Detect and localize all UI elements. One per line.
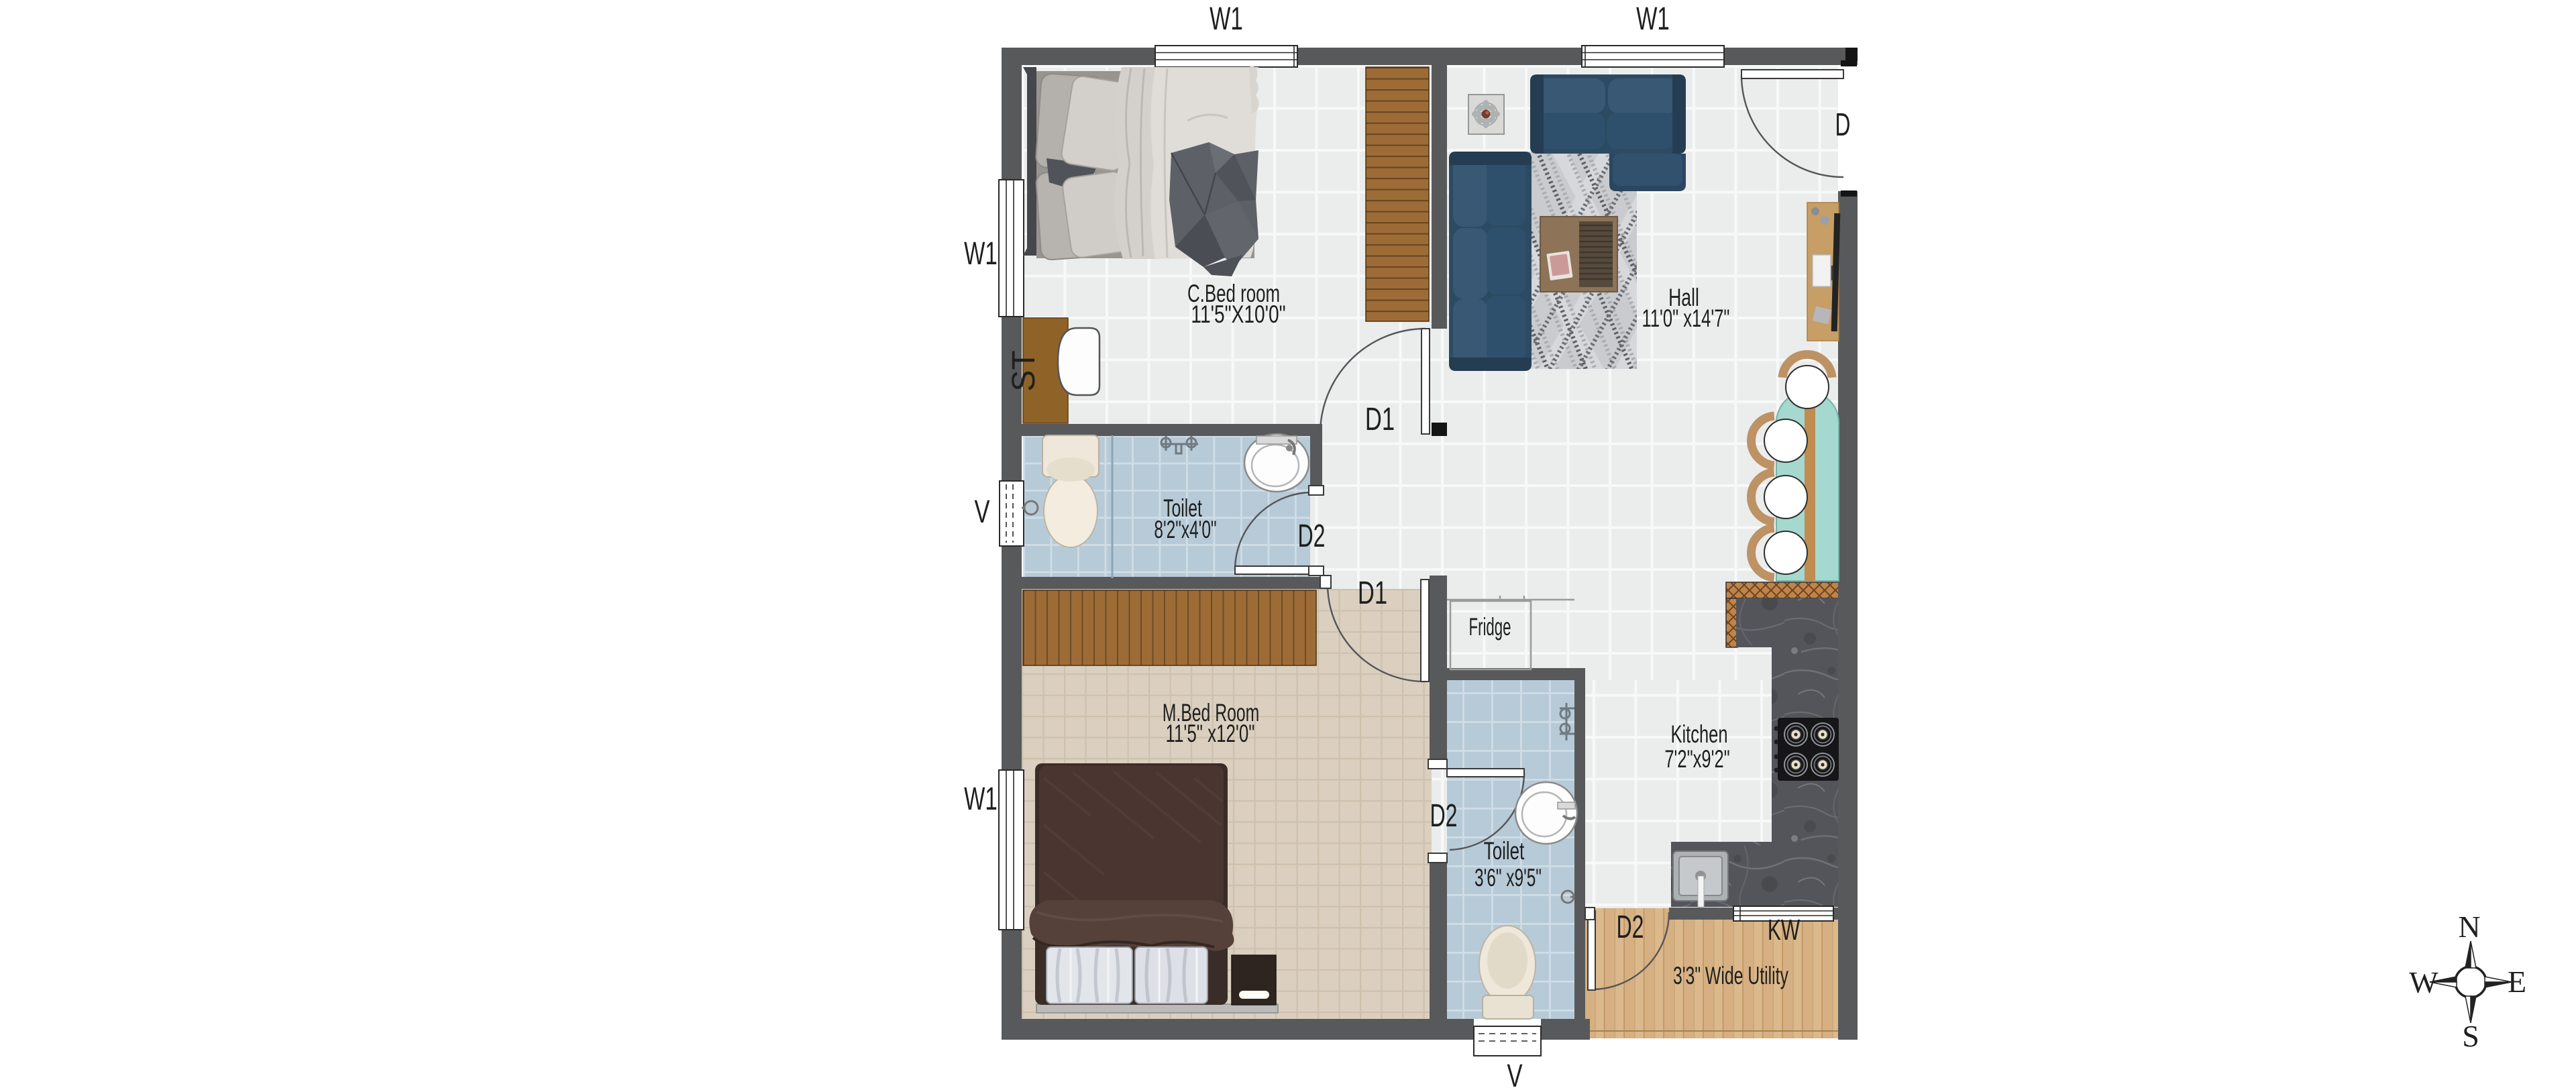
svg-text:ST: ST [1006, 350, 1042, 391]
svg-text:3'3" Wide Utility: 3'3" Wide Utility [1673, 961, 1788, 989]
svg-text:N: N [2458, 910, 2480, 944]
svg-text:D2: D2 [1297, 518, 1325, 554]
svg-text:3'6" x9'5": 3'6" x9'5" [1474, 864, 1542, 891]
svg-text:8'2"x4'0": 8'2"x4'0" [1154, 516, 1216, 543]
svg-text:D: D [1835, 106, 1851, 142]
svg-text:D1: D1 [1365, 400, 1395, 437]
svg-text:11'5"X10'0": 11'5"X10'0" [1191, 300, 1285, 328]
svg-text:W: W [2409, 965, 2438, 999]
svg-text:Toilet: Toilet [1484, 836, 1525, 865]
svg-text:W1: W1 [1636, 1, 1670, 37]
svg-text:D2: D2 [1616, 909, 1644, 945]
svg-text:D1: D1 [1358, 574, 1387, 610]
svg-text:V: V [974, 493, 989, 529]
svg-text:V: V [1507, 1057, 1522, 1090]
svg-text:E: E [2508, 965, 2526, 999]
svg-text:S: S [2462, 1019, 2479, 1053]
svg-text:11'5" x12'0": 11'5" x12'0" [1166, 719, 1255, 747]
svg-text:D2: D2 [1430, 798, 1457, 834]
svg-text:W1: W1 [1210, 1, 1243, 37]
svg-text:11'0" x14'7": 11'0" x14'7" [1642, 304, 1730, 332]
svg-text:7'2"x9'2": 7'2"x9'2" [1664, 745, 1729, 773]
svg-text:W1: W1 [964, 781, 998, 817]
svg-text:Kitchen: Kitchen [1670, 720, 1727, 748]
svg-text:Fridge: Fridge [1469, 613, 1511, 641]
svg-text:KW: KW [1768, 913, 1801, 946]
svg-text:W1: W1 [964, 235, 998, 272]
